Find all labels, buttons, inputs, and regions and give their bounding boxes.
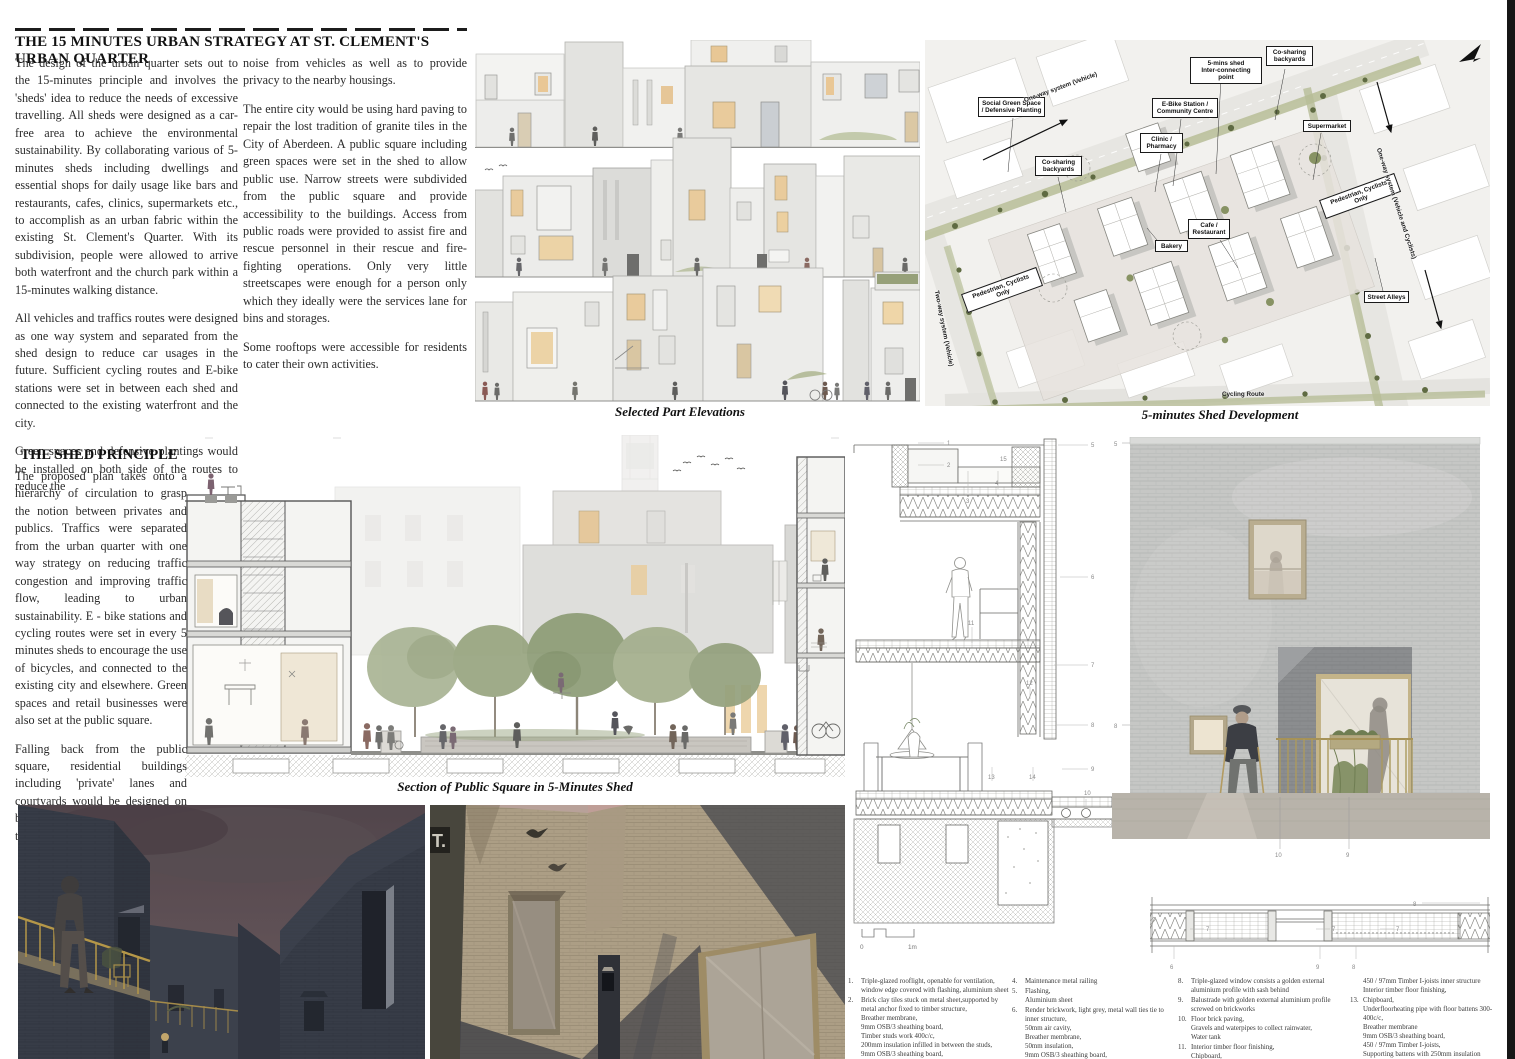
legend-item: 11. Interior timber floor finishing, Chi… xyxy=(1178,1044,1346,1059)
plan-label-clinic: Clinic / Pharmacy xyxy=(1140,133,1183,153)
right-cut-building xyxy=(797,457,845,755)
legend-item: 13. Chipboard, Underfloorheating pipe wi… xyxy=(1350,997,1502,1059)
elevation-row-1 xyxy=(475,40,920,148)
left-cut-building xyxy=(185,473,351,753)
plan-label-bakery: Bakery xyxy=(1155,240,1188,252)
svg-text:8: 8 xyxy=(1352,965,1356,971)
elevation-row-2-left xyxy=(475,138,731,277)
svg-text:10: 10 xyxy=(1084,791,1091,797)
plan-label-cycling-route: Cycling Route xyxy=(1222,391,1264,398)
svg-text:6: 6 xyxy=(1091,575,1095,581)
legend-item: 9. Balustrade with golden external alumi… xyxy=(1178,997,1346,1015)
plan-label-cosharing-left: Co-sharing backyards xyxy=(1035,156,1082,176)
legend-column-3: 8. Triple-glazed window consists a golde… xyxy=(1178,978,1346,1059)
scale-bar: 0 1m xyxy=(860,929,917,951)
wall-plan-detail: 7 7 7 6 9 8 8 xyxy=(1150,893,1490,978)
svg-text:7: 7 xyxy=(1091,663,1095,669)
svg-text:12: 12 xyxy=(1026,681,1033,687)
svg-text:8: 8 xyxy=(1114,724,1118,730)
legend-item: 450 / 97mm Timber I-joists inner structu… xyxy=(1350,978,1502,996)
plan-label-street-alleys: Street Alleys xyxy=(1364,291,1409,303)
strategy-column-2: noise from vehicles as well as to provid… xyxy=(243,55,467,384)
legend-item: 8. Triple-glazed window consists a golde… xyxy=(1178,978,1346,996)
public-square-section-drawing xyxy=(185,435,845,777)
strategy-paragraph: noise from vehicles as well as to provid… xyxy=(243,55,467,90)
svg-text:9: 9 xyxy=(1346,853,1350,859)
selected-part-elevations-drawing xyxy=(475,40,920,403)
svg-text:9: 9 xyxy=(1091,767,1095,773)
elevations-caption: Selected Part Elevations xyxy=(540,404,820,420)
shed-paragraph: The proposed plan takes onto a hierarchy… xyxy=(15,468,187,730)
plan-label-five-mins-shed: 5-mins shed Inter-connecting point xyxy=(1190,57,1262,84)
section-caption: Section of Public Square in 5-Minutes Sh… xyxy=(350,779,680,795)
svg-text:1: 1 xyxy=(947,441,951,447)
svg-text:15: 15 xyxy=(1000,457,1007,463)
legend-item: 10. Floor brick paving, Gravels and wate… xyxy=(1178,1016,1346,1043)
plan-label-ebike: E-Bike Station / Community Centre xyxy=(1152,98,1218,118)
plan-label-supermarket: Supermarket xyxy=(1303,120,1351,132)
top-rule xyxy=(15,28,467,31)
birds xyxy=(673,456,745,471)
svg-text:10: 10 xyxy=(1275,853,1282,859)
facade-pavement xyxy=(1112,793,1490,839)
strategy-paragraph: Some rooftops were accessible for reside… xyxy=(243,339,467,374)
section-foundation xyxy=(185,755,845,777)
site-plan-caption: 5-minutes Shed Development xyxy=(1090,407,1350,423)
legend-column-2: 4. Maintenance metal railing 5. Flashing… xyxy=(1012,978,1176,1059)
shed-principle-text: The proposed plan takes onto a hierarchy… xyxy=(15,468,187,856)
render-courtyard-dusk xyxy=(18,805,425,1059)
render-alley-day: T. xyxy=(430,805,845,1059)
svg-text:5: 5 xyxy=(1114,442,1118,448)
legend-item: 1. Triple-glazed rooflight, openable for… xyxy=(848,978,1010,996)
facade-upper-window xyxy=(1249,520,1306,599)
svg-text:14: 14 xyxy=(1029,775,1036,781)
svg-text:0: 0 xyxy=(860,944,864,951)
plan-label-cafe: Cafe / Restaurant xyxy=(1188,219,1230,239)
construction-detail-section: 1 2 3 4 15 5 6 7 8 9 10 11 12 13 14 0 1m xyxy=(848,437,1112,955)
svg-text:5: 5 xyxy=(1091,443,1095,449)
elevation-row-2-right xyxy=(730,156,920,277)
legend-column-4: 450 / 97mm Timber I-joists inner structu… xyxy=(1350,978,1502,1059)
legend-item: 2. Brick clay tiles stuck on metal sheet… xyxy=(848,997,1010,1059)
facade-recess xyxy=(1278,647,1412,795)
plan-label-cosharing-right: Co-sharing backyards xyxy=(1266,46,1313,66)
strategy-paragraph: All vehicles and traffics routes were de… xyxy=(15,310,238,432)
svg-text:1m: 1m xyxy=(908,944,917,951)
svg-text:6: 6 xyxy=(1170,965,1174,971)
strategy-paragraph: The design of the urban quarter sets out… xyxy=(15,55,238,299)
legend-item: 4. Maintenance metal railing xyxy=(1012,978,1176,987)
legend-item: 5. Flashing, Aluminium sheet xyxy=(1012,988,1176,1006)
svg-text:13: 13 xyxy=(988,775,995,781)
svg-text:8: 8 xyxy=(1091,723,1095,729)
legend-column-1: 1. Triple-glazed rooflight, openable for… xyxy=(848,978,1010,1059)
svg-text:11: 11 xyxy=(968,621,975,627)
presentation-board: THE 15 MINUTES URBAN STRATEGY AT ST. CLE… xyxy=(0,0,1515,1059)
page-edge-strip xyxy=(1507,0,1515,1059)
brick-facade-elevation: 5 8 xyxy=(1112,437,1490,862)
shed-principle-title: THE SHED PRINCIPLE xyxy=(8,447,190,464)
elevation-row-3 xyxy=(475,268,920,401)
svg-text:9: 9 xyxy=(1316,965,1320,971)
legend-item: 6. Render brickwork, light grey, metal w… xyxy=(1012,1007,1176,1059)
strategy-paragraph: The entire city would be using hard pavi… xyxy=(243,101,467,328)
